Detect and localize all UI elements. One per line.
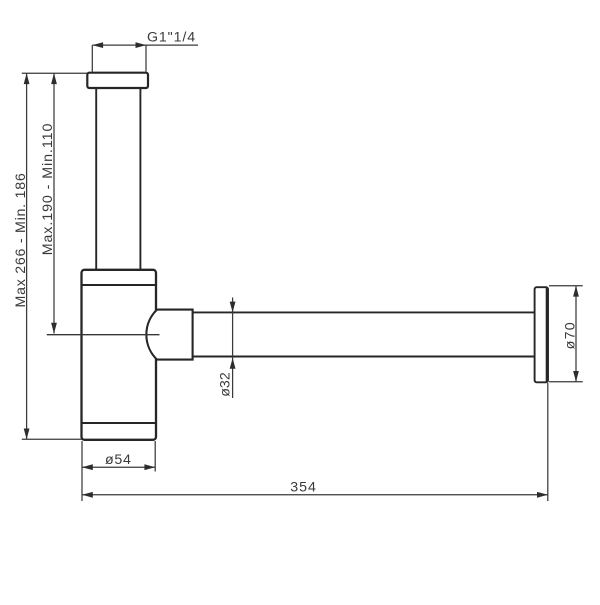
svg-text:354: 354	[290, 479, 317, 495]
svg-text:ø70: ø70	[563, 321, 579, 349]
svg-text:ø54: ø54	[105, 452, 132, 468]
svg-text:Max 266 - Min. 186: Max 266 - Min. 186	[13, 173, 29, 308]
svg-text:Max.190 - Min.110: Max.190 - Min.110	[40, 123, 56, 256]
svg-text:G1"1/4: G1"1/4	[147, 29, 196, 45]
svg-text:ø32: ø32	[218, 372, 234, 397]
